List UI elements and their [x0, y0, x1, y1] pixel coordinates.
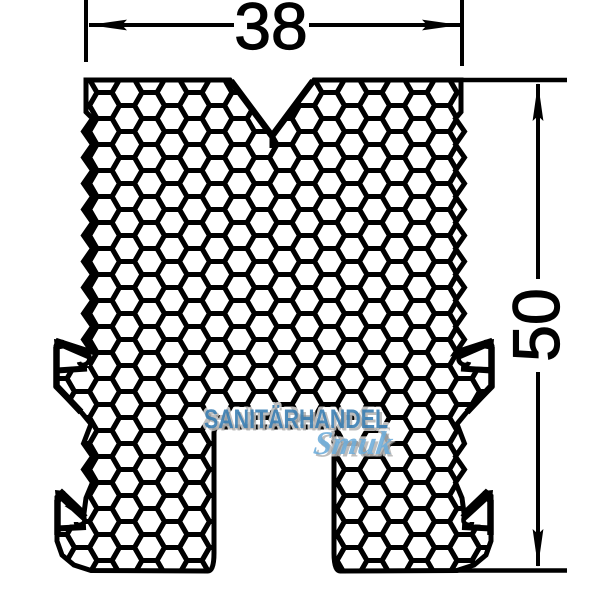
svg-text:50: 50 [499, 288, 573, 361]
svg-text:Smuk: Smuk [311, 425, 395, 462]
svg-text:38: 38 [234, 0, 307, 63]
